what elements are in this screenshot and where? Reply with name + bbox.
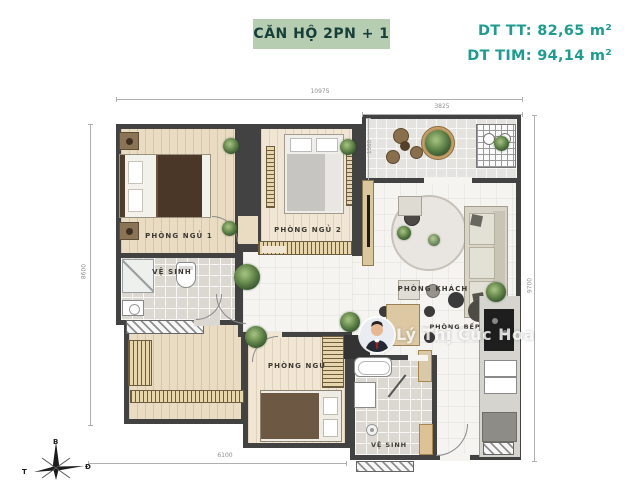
apartment-title-badge: CĂN HỘ 2PN + 1 xyxy=(253,19,390,49)
room-label-bedroom1: PHÒNG NGỦ 1 xyxy=(126,232,232,240)
dimension-label-bottom-width: 6100 xyxy=(200,452,250,459)
door-gap-bedroom1 xyxy=(238,216,258,244)
plant-balcony-corner xyxy=(494,136,509,151)
room-label-bathroom1: VỆ SINH xyxy=(134,268,210,276)
kitchen-hatch xyxy=(483,442,514,455)
floor-plan-page: CĂN HỘ 2PN + 1 DT TT: 82,65 m² DT TIM: 9… xyxy=(0,0,642,480)
plant-balcony xyxy=(425,130,451,156)
area-tim-text: DT TIM: 94,14 m² xyxy=(420,48,612,64)
door-gap-balcony xyxy=(424,177,472,184)
floor-drain xyxy=(366,424,378,436)
plant-rug xyxy=(397,226,411,240)
ac-ledge-hatch xyxy=(126,320,204,334)
dimension-line-top xyxy=(116,97,523,102)
vanity-bathroom2 xyxy=(354,382,376,408)
area-tt-text: DT TT: 82,65 m² xyxy=(420,23,612,39)
balcony-chair xyxy=(410,146,423,159)
bathtub xyxy=(354,357,392,377)
room-label-bedroom3: PHÒNG NGỦ xyxy=(255,362,339,370)
agent-photo xyxy=(360,318,394,352)
balcony-table xyxy=(400,141,410,151)
bed-double-bedroom3 xyxy=(260,390,342,442)
door-gap-bedroom2 xyxy=(262,246,286,253)
balcony-chair xyxy=(386,150,400,164)
compass-label-north: B xyxy=(53,438,58,446)
sink-bathroom1 xyxy=(122,300,144,316)
compass-label-west: T xyxy=(22,468,27,476)
wardrobe-long xyxy=(130,390,244,403)
dining-chair xyxy=(424,306,435,317)
plant-bedroom3 xyxy=(245,326,267,348)
plant-accent xyxy=(340,139,356,155)
door-leaf-tan2 xyxy=(419,424,433,455)
armchair-top xyxy=(398,196,422,216)
agent-avatar xyxy=(360,318,394,352)
dimension-label-total-width: 10975 xyxy=(296,88,344,95)
plant-corridor xyxy=(234,264,260,290)
tv-console xyxy=(362,180,374,266)
dimension-label-right-height: 9700 xyxy=(527,268,534,304)
bed-double-bedroom1 xyxy=(119,154,211,218)
dimension-label-balcony-depth: 1500 xyxy=(367,135,373,159)
kitchen-counter xyxy=(479,296,520,457)
dimension-line-left xyxy=(88,124,93,426)
nightstand xyxy=(119,132,139,150)
plant-corridor-south xyxy=(340,312,360,332)
shower-bathroom1 xyxy=(122,259,154,293)
door-gap-entry xyxy=(440,454,470,461)
ottoman-small xyxy=(448,292,464,308)
room-label-living: PHÒNG KHÁCH xyxy=(378,285,488,293)
room-label-bathroom2: VỆ SINH xyxy=(366,441,412,449)
dimension-line-bottom xyxy=(88,461,347,466)
plant-decor xyxy=(428,234,440,246)
door-gap-bathroom2 xyxy=(408,355,428,361)
closet-left xyxy=(128,340,152,386)
bathroom2-ledge-hatch xyxy=(356,461,414,472)
compass-label-east: Đ xyxy=(85,463,91,471)
dimension-label-left-height: 8600 xyxy=(81,254,88,290)
bench-bedroom2-left xyxy=(266,146,275,208)
compass-rose: B Đ T xyxy=(20,436,92,480)
watermark-text: Lý Thị Cúc Hoa xyxy=(396,325,535,344)
room-label-bedroom2: PHÒNG NGỦ 2 xyxy=(260,226,356,234)
dimension-label-balcony-width: 3825 xyxy=(420,103,464,110)
bed-double-bedroom2 xyxy=(284,134,344,214)
plant-living xyxy=(486,282,506,302)
dimension-line-balcony xyxy=(362,112,523,117)
plant-accent xyxy=(223,138,239,154)
